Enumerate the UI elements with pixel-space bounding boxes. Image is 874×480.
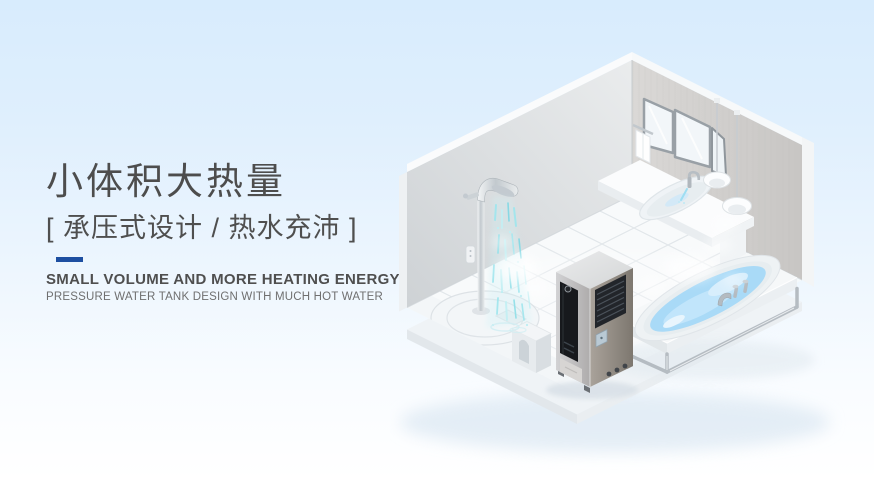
heater-logo-icon [565, 286, 571, 292]
headline-title: 小体积大热量 [46, 161, 400, 202]
headline-en-subtitle: PRESSURE WATER TANK DESIGN WITH MUCH HOT… [46, 291, 400, 303]
bathroom-illustration [390, 30, 874, 475]
headline-block: 小体积大热量 [ 承压式设计 / 热水充沛 ] SMALL VOLUME AND… [46, 161, 400, 303]
pendant-lamp [723, 198, 752, 215]
shower-pole [478, 193, 485, 311]
shower-control [466, 246, 475, 263]
headline-en-title: SMALL VOLUME AND MORE HEATING ENERGY [46, 271, 400, 288]
promo-banner: 小体积大热量 [ 承压式设计 / 热水充沛 ] SMALL VOLUME AND… [0, 0, 874, 480]
headline-subtitle: [ 承压式设计 / 热水充沛 ] [46, 206, 400, 245]
pendant-lamp [704, 172, 731, 188]
headline-divider [56, 257, 83, 262]
